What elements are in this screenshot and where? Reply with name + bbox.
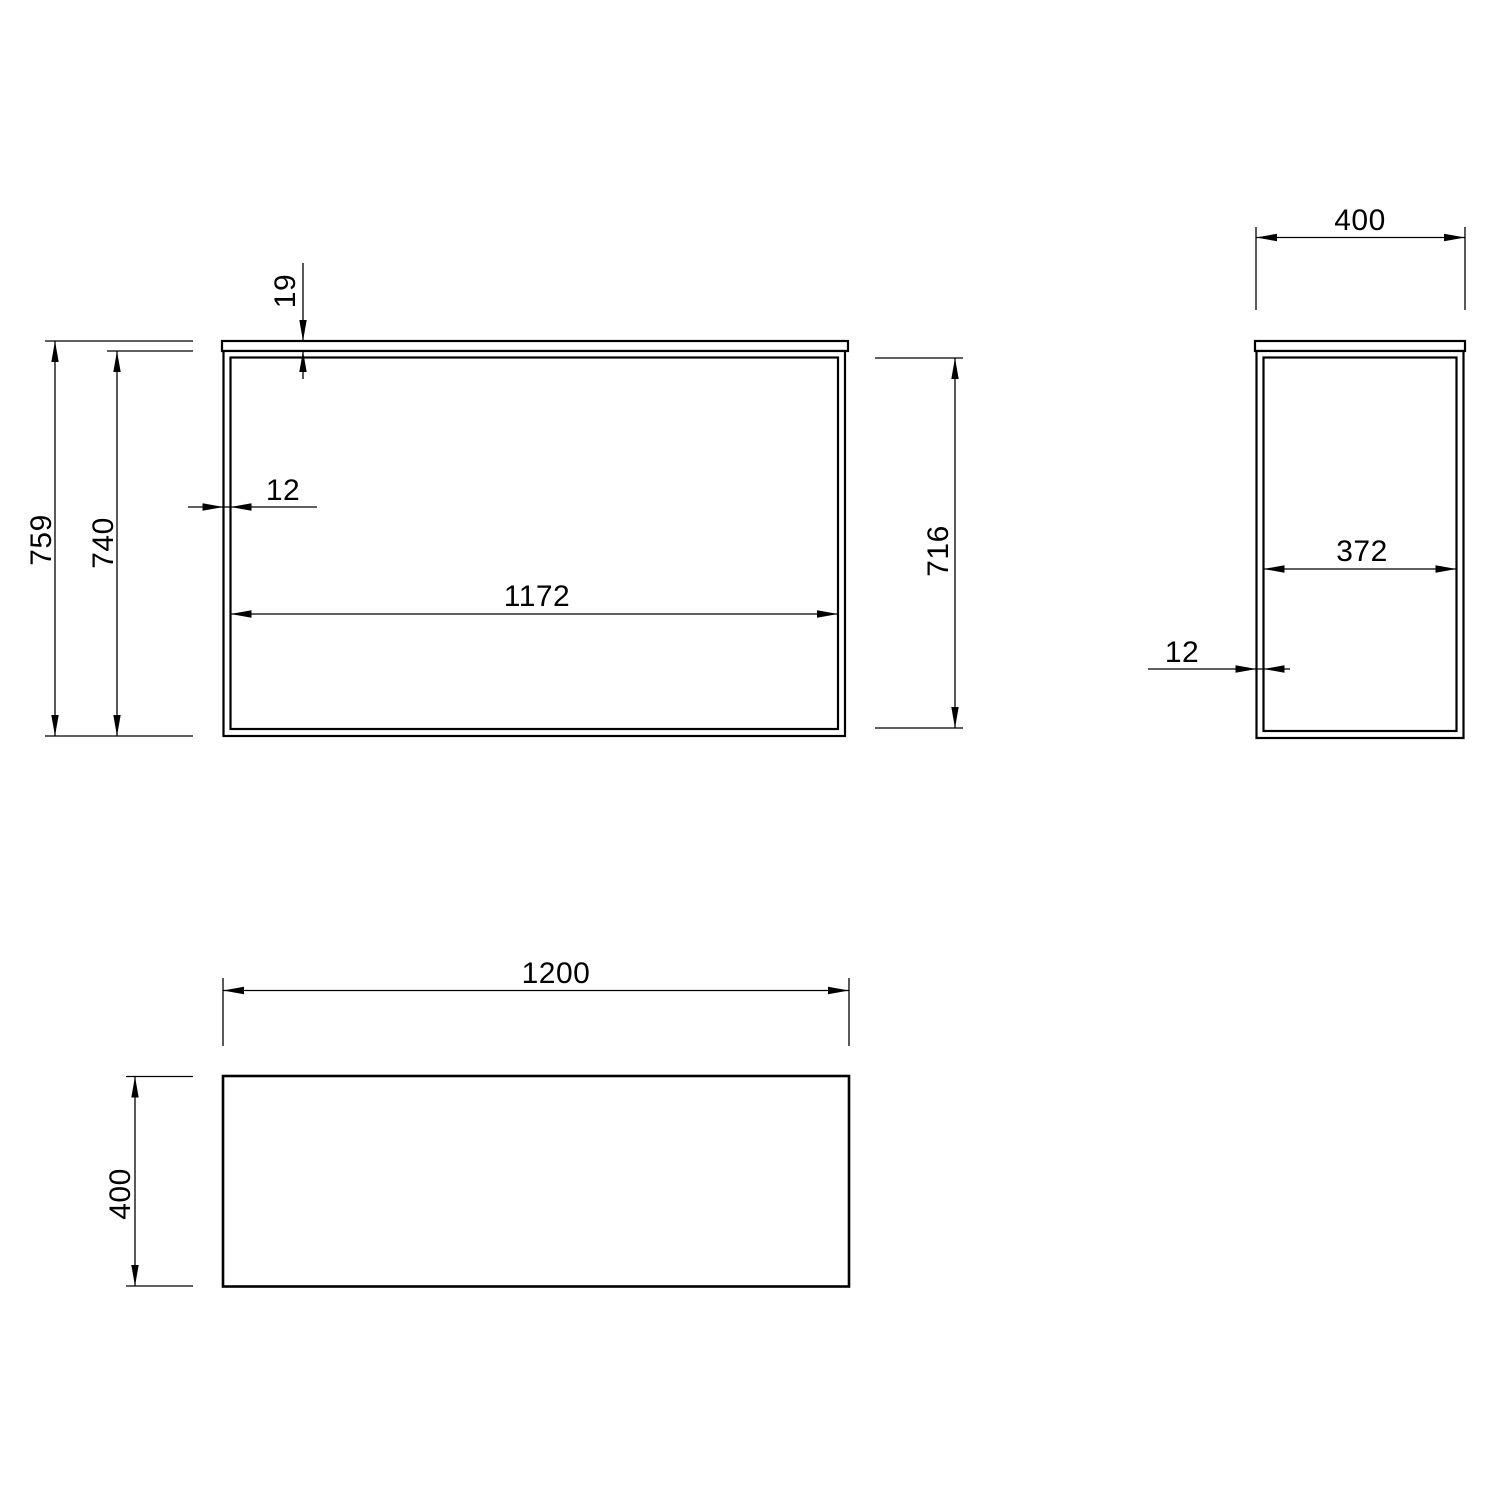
technical-drawing: 19 759 740 12 1172 716 (0, 0, 1500, 1500)
technical-drawing-page: 19 759 740 12 1172 716 (0, 0, 1500, 1500)
dim-top-overall-width: 1200 (223, 957, 849, 1046)
top-view (223, 1076, 849, 1287)
top-panel-outline (223, 1076, 849, 1287)
arrowhead (828, 987, 849, 994)
dim-label-top-overall-width: 1200 (522, 957, 591, 990)
dim-label-front-inner-height: 716 (922, 525, 955, 577)
arrowhead (131, 1265, 138, 1286)
arrowhead (113, 351, 120, 372)
dim-label-top-overall-depth: 400 (104, 1168, 137, 1220)
arrowhead (299, 320, 306, 341)
dim-label-front-inner-width: 1172 (504, 580, 571, 613)
dim-label-front-frame-height: 740 (87, 517, 120, 569)
dim-front-inner-height: 716 (875, 358, 963, 728)
dim-side-overall-depth: 400 (1256, 204, 1465, 310)
arrowhead (203, 503, 224, 510)
dim-front-frame-height: 740 (87, 351, 193, 736)
dim-label-side-overall-depth: 400 (1334, 204, 1386, 237)
front-view (222, 341, 848, 736)
dim-label-side-wall-thickness: 12 (1165, 636, 1199, 669)
arrowhead (51, 715, 58, 736)
side-top-panel (1255, 341, 1465, 351)
arrowhead (951, 707, 958, 728)
arrowhead (113, 715, 120, 736)
arrowhead (951, 358, 958, 379)
dim-label-front-wall-thickness: 12 (266, 474, 300, 507)
arrowhead (1444, 234, 1465, 241)
dim-top-overall-depth: 400 (104, 1077, 193, 1287)
arrowhead (1236, 665, 1257, 672)
dim-label-side-inner-depth: 372 (1336, 535, 1388, 568)
arrowhead (1256, 234, 1277, 241)
dim-label-front-top-thickness: 19 (269, 274, 302, 308)
dim-label-front-overall-height: 759 (25, 514, 58, 566)
arrowhead (131, 1077, 138, 1098)
front-frame-inner (231, 358, 839, 730)
arrowhead (51, 341, 58, 362)
arrowhead (223, 987, 244, 994)
front-top-panel (222, 341, 848, 351)
